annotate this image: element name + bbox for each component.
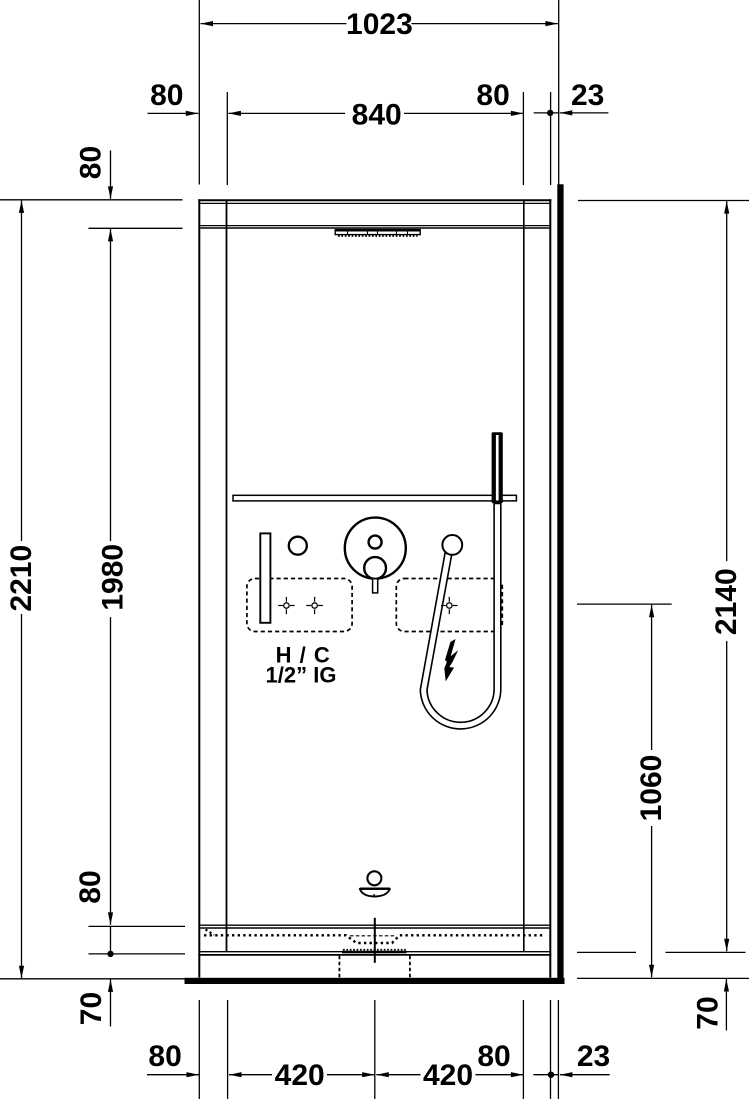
svg-text:80: 80	[476, 79, 509, 112]
svg-text:80: 80	[150, 79, 183, 112]
svg-text:23: 23	[571, 79, 604, 112]
svg-text:1980: 1980	[97, 544, 130, 611]
svg-text:70: 70	[75, 992, 108, 1025]
svg-text:2140: 2140	[710, 568, 743, 635]
svg-text:2210: 2210	[5, 545, 38, 612]
svg-text:23: 23	[577, 1040, 610, 1073]
svg-text:1060: 1060	[635, 755, 668, 822]
svg-text:70: 70	[692, 996, 725, 1029]
svg-text:80: 80	[74, 146, 107, 179]
svg-text:1/2” IG: 1/2” IG	[266, 662, 337, 687]
svg-text:1023: 1023	[346, 8, 413, 41]
svg-text:420: 420	[423, 1059, 473, 1092]
svg-text:840: 840	[352, 98, 402, 131]
svg-text:80: 80	[74, 870, 107, 903]
svg-text:80: 80	[148, 1040, 181, 1073]
svg-text:80: 80	[477, 1040, 510, 1073]
svg-text:420: 420	[275, 1059, 325, 1092]
